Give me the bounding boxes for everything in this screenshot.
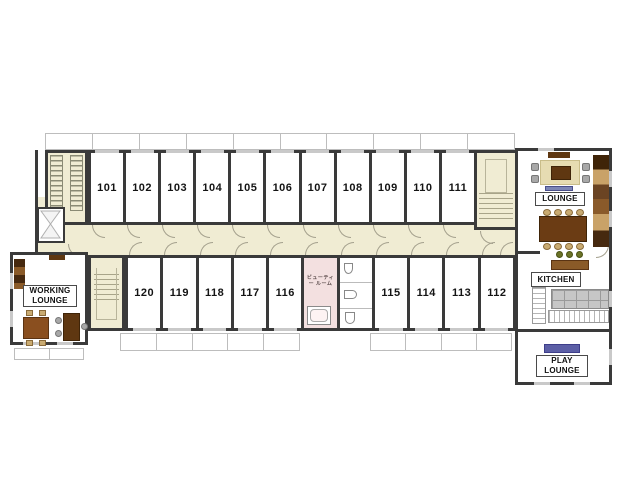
toilet-fixture: [345, 312, 355, 324]
rug: [540, 160, 580, 185]
chair: [543, 243, 551, 250]
balcony-segment: [442, 334, 477, 350]
desk: [63, 313, 80, 341]
tv-board: [548, 152, 570, 158]
working-lounge-label: WORKING LOUNGE: [23, 285, 77, 307]
coffee-table: [551, 166, 571, 180]
stair-flight: [50, 155, 63, 211]
window: [376, 150, 399, 153]
balcony-segment: [50, 349, 84, 359]
balcony-bottom-left: [120, 333, 300, 351]
room-109: 109: [369, 150, 407, 225]
balcony-segment: [374, 134, 421, 149]
window: [609, 171, 612, 187]
chair: [55, 330, 62, 337]
chair: [565, 243, 573, 250]
window: [411, 150, 434, 153]
room-103: 103: [158, 150, 196, 225]
window: [609, 349, 612, 365]
room-102: 102: [123, 150, 161, 225]
staircase-bottom-left: [88, 255, 125, 331]
room-112: 112: [478, 255, 516, 331]
room-113: 113: [442, 255, 480, 331]
balcony-segment: [157, 334, 193, 350]
balcony-segment: [193, 334, 229, 350]
kitchen-label: KITCHEN: [531, 272, 581, 287]
window: [201, 150, 224, 153]
cabinet: [49, 255, 65, 260]
window: [168, 328, 191, 331]
window: [203, 328, 226, 331]
chair: [543, 209, 551, 216]
stair-flight: [70, 155, 83, 211]
chair: [554, 209, 562, 216]
window: [574, 382, 590, 385]
room-111: 111: [439, 150, 477, 225]
balcony-segment: [327, 134, 374, 149]
bathtub-inner: [310, 309, 328, 322]
chair: [576, 209, 584, 216]
balcony-top: [45, 133, 515, 150]
window: [133, 328, 156, 331]
toilet-room: [337, 255, 375, 331]
room-118: 118: [196, 255, 234, 331]
window: [446, 150, 469, 153]
room-104: 104: [193, 150, 231, 225]
window: [166, 150, 189, 153]
balcony-segment: [421, 134, 468, 149]
chair: [565, 209, 573, 216]
window: [95, 150, 118, 153]
window: [341, 150, 364, 153]
window: [485, 328, 508, 331]
chair: [39, 310, 46, 316]
wall-stub: [518, 251, 540, 254]
window: [10, 273, 13, 289]
chair: [81, 323, 88, 330]
toilet-fixture: [344, 290, 357, 299]
elevator-icon: [39, 209, 62, 240]
stool: [556, 251, 563, 258]
window: [609, 291, 612, 307]
room-114: 114: [407, 255, 445, 331]
balcony-bottom-right: [370, 333, 512, 351]
table: [23, 317, 49, 339]
window: [415, 328, 438, 331]
tv-screen: [545, 186, 573, 191]
chair: [26, 310, 33, 316]
window: [236, 150, 259, 153]
bar-counter: [551, 260, 589, 270]
room-120: 120: [125, 255, 163, 331]
partition: [340, 308, 372, 309]
play-lounge-label: PLAY LOUNGE: [536, 355, 588, 377]
balcony-segment: [477, 334, 511, 350]
stool: [576, 251, 583, 258]
room-119: 119: [160, 255, 198, 331]
room-108: 108: [334, 150, 372, 225]
armchair: [582, 175, 590, 183]
room-105: 105: [228, 150, 266, 225]
balcony-segment: [93, 134, 140, 149]
play-mat: [544, 344, 580, 353]
balcony-segment: [228, 334, 264, 350]
window: [534, 382, 550, 385]
armchair: [531, 175, 539, 183]
balcony-segment: [15, 349, 50, 359]
sink: [344, 263, 353, 274]
window: [450, 328, 473, 331]
kitchen-counter-left: [532, 287, 546, 324]
armchair: [531, 163, 539, 171]
room-115: 115: [372, 255, 410, 331]
balcony-segment: [281, 134, 328, 149]
stair-landing: [96, 268, 117, 320]
bathtub: [307, 306, 331, 325]
stool: [566, 251, 573, 258]
kitchen-counter: [548, 310, 609, 323]
window: [271, 150, 294, 153]
room-110: 110: [404, 150, 442, 225]
right-wing: LOUNGE KITCHEN PLAY LOUNGE: [515, 148, 612, 385]
lounge-label: LOUNGE: [535, 192, 585, 206]
balcony-segment: [406, 334, 441, 350]
balcony-segment: [371, 334, 406, 350]
window: [10, 311, 13, 327]
window: [379, 328, 402, 331]
beauty-room-label: ビューティー ルーム: [304, 276, 336, 287]
balcony-segment: [140, 134, 187, 149]
stair-treads: [479, 193, 513, 221]
window: [274, 328, 297, 331]
elevator: [37, 207, 65, 243]
chair: [26, 340, 33, 346]
balcony-segment: [46, 134, 93, 149]
working-lounge-room: WORKING LOUNGE: [10, 252, 88, 345]
chair: [39, 340, 46, 346]
room-101: 101: [88, 150, 126, 225]
room-116: 116: [266, 255, 304, 331]
room-117: 117: [231, 255, 269, 331]
window: [538, 148, 554, 151]
chair: [55, 317, 62, 324]
balcony-segment: [468, 134, 514, 149]
armchair: [582, 163, 590, 171]
dining-table: [539, 216, 587, 242]
window: [57, 342, 73, 345]
balcony-working-lounge: [14, 348, 84, 360]
floor-plan-canvas: 1011021031041051061071081091101111201191…: [0, 0, 640, 480]
window: [131, 150, 154, 153]
stair-landing: [485, 159, 507, 193]
wall-divider: [518, 329, 609, 332]
chair: [554, 243, 562, 250]
balcony-segment: [234, 134, 281, 149]
chair: [576, 243, 584, 250]
staircase-top-right: [474, 150, 518, 230]
room-106: 106: [263, 150, 301, 225]
room-107: 107: [299, 150, 337, 225]
balcony-segment: [187, 134, 234, 149]
balcony-segment: [121, 334, 157, 350]
kitchen-appliances: [551, 289, 609, 309]
balcony-segment: [264, 334, 299, 350]
window: [238, 328, 261, 331]
window: [609, 211, 612, 227]
bookshelf: [593, 155, 609, 247]
window: [306, 150, 329, 153]
partition: [340, 282, 372, 283]
beauty-room: ビューティー ルーム: [301, 255, 339, 331]
